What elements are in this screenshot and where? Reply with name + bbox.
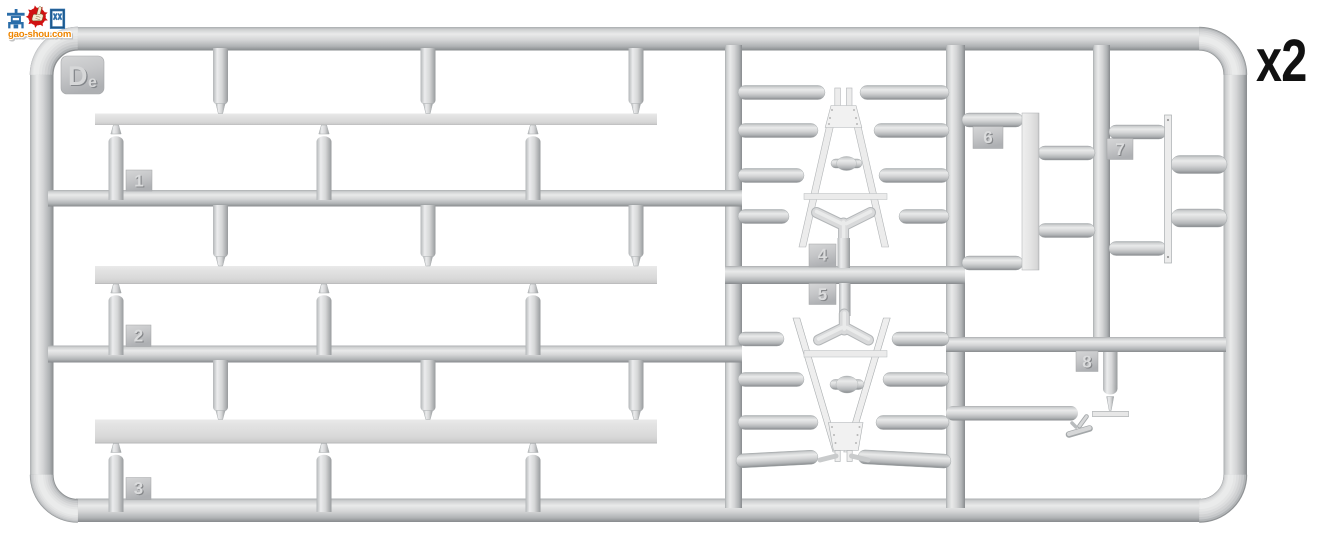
svg-text:x2: x2: [1256, 27, 1307, 94]
svg-text:5: 5: [818, 285, 827, 304]
svg-text:6: 6: [983, 128, 992, 147]
svg-text:gao-shou.com: gao-shou.com: [8, 29, 71, 40]
svg-text:2: 2: [134, 327, 143, 346]
svg-text:D: D: [68, 61, 88, 91]
svg-text:8: 8: [1082, 352, 1091, 371]
svg-text:7: 7: [1115, 140, 1124, 159]
svg-text:4: 4: [818, 246, 828, 265]
svg-text:3: 3: [134, 479, 143, 498]
svg-text:e: e: [88, 74, 97, 91]
svg-text:1: 1: [134, 172, 143, 191]
